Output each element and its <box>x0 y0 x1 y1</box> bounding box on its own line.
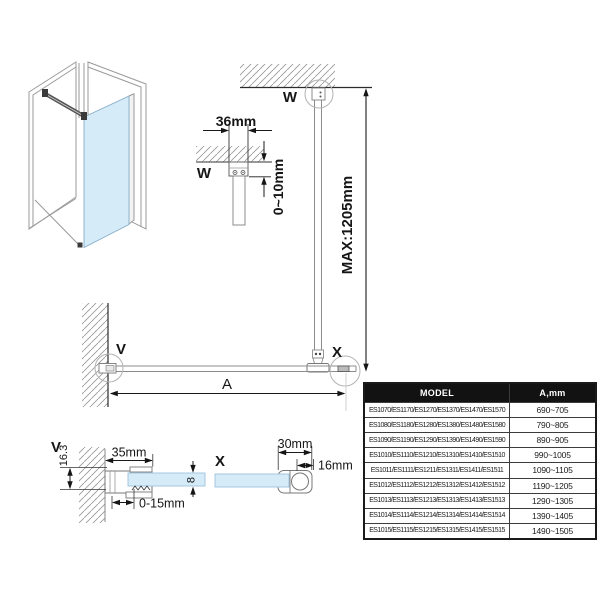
model-cell: ES1011/ES1111/ES1211/ES1311/ES1411/ES151… <box>365 463 510 477</box>
model-cell: ES1012/ES1112/ES1212/ES1312/ES1412/ES151… <box>365 479 510 493</box>
label-max-height: MAX:1205mm <box>339 176 356 274</box>
model-cell: ES1014/ES1114/ES1214/ES1314/ES1414/ES151… <box>365 509 510 523</box>
amm-cell: 1090~1105 <box>510 463 595 477</box>
label-x-detail: X <box>215 453 225 470</box>
table-row: ES1090/ES1190/ES1290/ES1390/ES1490/ES159… <box>365 432 595 447</box>
label-16-3: 16.3 <box>58 445 70 466</box>
amm-cell: 1490~1505 <box>510 524 595 538</box>
table-row: ES1012/ES1112/ES1212/ES1312/ES1412/ES151… <box>365 478 595 493</box>
model-table: MODEL A,mm ES1070/ES1170/ES1270/ES1370/E… <box>363 382 597 540</box>
table-header-row: MODEL A,mm <box>365 384 595 402</box>
label-36mm: 36mm <box>216 113 256 129</box>
amm-cell: 890~905 <box>510 433 595 447</box>
label-x: X <box>332 344 342 361</box>
model-cell: ES1010/ES1110/ES1210/ES1310/ES1410/ES151… <box>365 448 510 462</box>
amm-cell: 1290~1305 <box>510 494 595 508</box>
label-35mm: 35mm <box>112 446 147 460</box>
model-cell: ES1070/ES1170/ES1270/ES1370/ES1470/ES157… <box>365 403 510 417</box>
label-w-detail: W <box>197 165 212 182</box>
label-0-15mm: 0-15mm <box>139 497 185 511</box>
amm-cell: 1390~1405 <box>510 509 595 523</box>
label-30mm: 30mm <box>278 437 313 451</box>
table-row: ES1015/ES1115/ES1215/ES1315/ES1415/ES151… <box>365 523 595 538</box>
model-cell: ES1090/ES1190/ES1290/ES1390/ES1490/ES159… <box>365 433 510 447</box>
ceiling-bracket-detail: 36mm W 0~10mm <box>196 113 286 225</box>
table-row: ES1013/ES1113/ES1213/ES1313/ES1413/ES151… <box>365 493 595 508</box>
label-v: V <box>116 341 126 358</box>
amm-cell: 790~805 <box>510 418 595 432</box>
bar-end-detail: X 30mm 16mm <box>215 437 353 493</box>
amm-cell: 690~705 <box>510 403 595 417</box>
table-row: ES1010/ES1110/ES1210/ES1310/ES1410/ES151… <box>365 447 595 462</box>
table-row: ES1011/ES1111/ES1211/ES1311/ES1411/ES151… <box>365 462 595 477</box>
model-header-cell: MODEL <box>365 384 510 402</box>
isometric-overview <box>29 62 146 248</box>
amm-cell: 990~1005 <box>510 448 595 462</box>
model-cell: ES1080/ES1180/ES1280/ES1380/ES1480/ES158… <box>365 418 510 432</box>
label-16mm: 16mm <box>318 459 353 473</box>
glass-panel <box>84 96 129 248</box>
model-cell: ES1015/ES1115/ES1215/ES1315/ES1415/ES151… <box>365 524 510 538</box>
table-row: ES1014/ES1114/ES1214/ES1314/ES1414/ES151… <box>365 508 595 523</box>
wall-profile-detail: V 16.3 35mm 8 0-15mm <box>51 439 205 523</box>
table-row: ES1070/ES1170/ES1270/ES1370/ES1470/ES157… <box>365 402 595 417</box>
bar-cross-section <box>292 473 309 490</box>
glass-edge-x <box>215 474 289 487</box>
amm-cell: 1190~1205 <box>510 479 595 493</box>
label-a: A <box>222 376 232 393</box>
label-0-10mm: 0~10mm <box>270 159 286 215</box>
label-8: 8 <box>186 477 198 483</box>
model-cell: ES1013/ES1113/ES1213/ES1313/ES1413/ES151… <box>365 494 510 508</box>
amm-header-cell: A,mm <box>510 384 595 402</box>
table-row: ES1080/ES1180/ES1280/ES1380/ES1480/ES158… <box>365 417 595 432</box>
label-w: W <box>283 89 298 106</box>
